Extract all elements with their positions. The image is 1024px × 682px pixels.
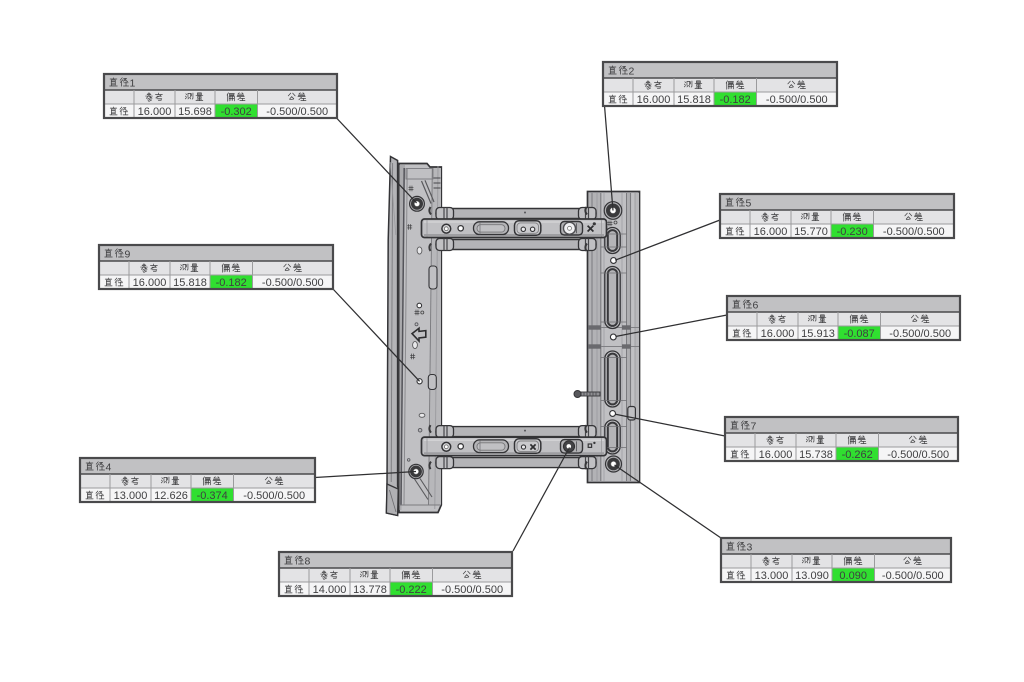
svg-text:16.000: 16.000 <box>759 449 793 461</box>
svg-text:16.000: 16.000 <box>138 106 172 118</box>
svg-text:7: 7 <box>751 420 757 432</box>
svg-text:-0.182: -0.182 <box>720 94 751 106</box>
svg-text:14.000: 14.000 <box>313 584 347 596</box>
svg-text:-0.230: -0.230 <box>837 226 868 238</box>
svg-text:8: 8 <box>305 555 311 567</box>
svg-text:-0.087: -0.087 <box>844 328 875 340</box>
svg-text:1: 1 <box>130 77 136 89</box>
svg-text:-0.500/0.500: -0.500/0.500 <box>266 106 328 118</box>
svg-text:-0.262: -0.262 <box>842 449 873 461</box>
svg-text:16.000: 16.000 <box>133 277 167 289</box>
svg-text:-0.500/0.500: -0.500/0.500 <box>887 449 949 461</box>
svg-text:15.913: 15.913 <box>801 328 835 340</box>
svg-text:9: 9 <box>125 248 131 260</box>
svg-text:15.698: 15.698 <box>178 106 212 118</box>
svg-text:-0.302: -0.302 <box>221 106 252 118</box>
svg-text:-0.500/0.500: -0.500/0.500 <box>889 328 951 340</box>
svg-text:13.090: 13.090 <box>795 570 829 582</box>
svg-text:0.090: 0.090 <box>839 570 867 582</box>
svg-text:-0.500/0.500: -0.500/0.500 <box>883 226 945 238</box>
svg-text:5: 5 <box>746 197 752 209</box>
svg-text:-0.182: -0.182 <box>216 277 247 289</box>
svg-text:13.000: 13.000 <box>114 490 148 502</box>
svg-text:16.000: 16.000 <box>761 328 795 340</box>
svg-text:-0.500/0.500: -0.500/0.500 <box>766 94 828 106</box>
svg-text:3: 3 <box>747 541 753 553</box>
svg-text:15.770: 15.770 <box>794 226 828 238</box>
svg-text:-0.500/0.500: -0.500/0.500 <box>441 584 503 596</box>
svg-text:-0.500/0.500: -0.500/0.500 <box>882 570 944 582</box>
svg-text:16.000: 16.000 <box>637 94 671 106</box>
svg-text:16.000: 16.000 <box>754 226 788 238</box>
svg-text:13.000: 13.000 <box>755 570 789 582</box>
svg-text:-0.374: -0.374 <box>197 490 228 502</box>
svg-text:15.818: 15.818 <box>677 94 711 106</box>
svg-text:6: 6 <box>753 299 759 311</box>
svg-text:15.738: 15.738 <box>799 449 833 461</box>
svg-text:-0.500/0.500: -0.500/0.500 <box>243 490 305 502</box>
svg-text:4: 4 <box>106 461 112 473</box>
svg-text:-0.500/0.500: -0.500/0.500 <box>262 277 324 289</box>
svg-text:-0.222: -0.222 <box>396 584 427 596</box>
svg-text:12.626: 12.626 <box>154 490 188 502</box>
svg-text:2: 2 <box>629 65 635 77</box>
svg-text:13.778: 13.778 <box>353 584 387 596</box>
svg-text:15.818: 15.818 <box>173 277 207 289</box>
